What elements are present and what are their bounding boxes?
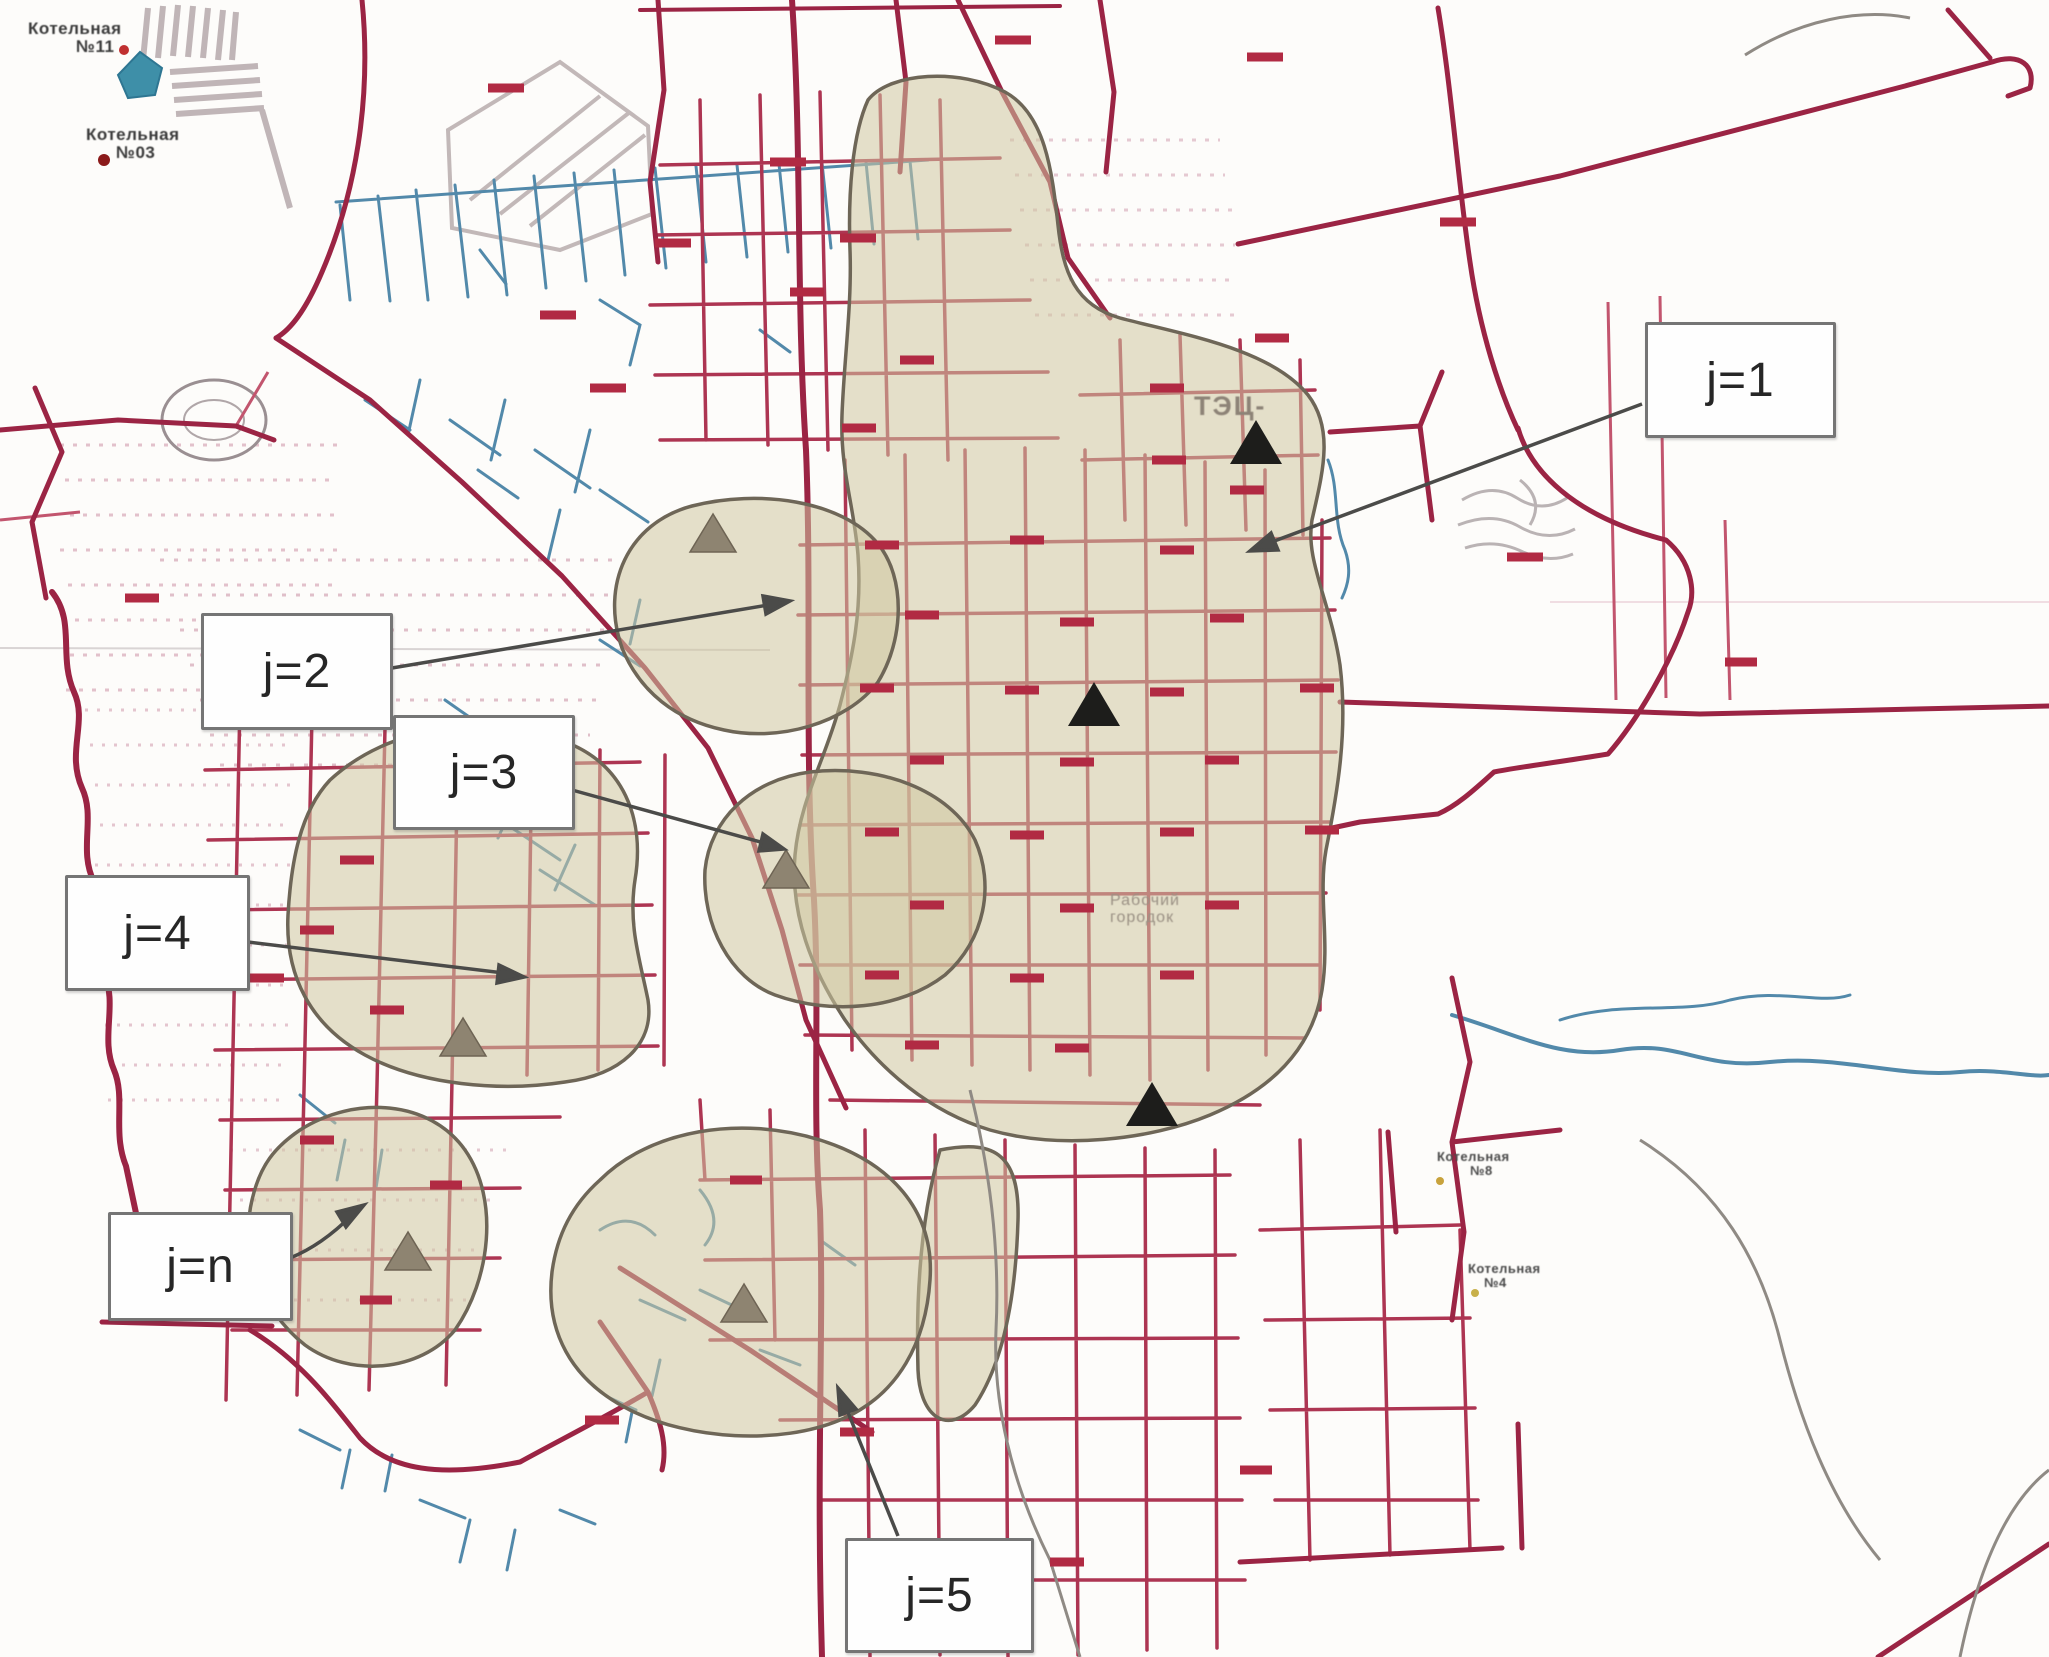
canal-band-upper bbox=[336, 160, 928, 301]
zone-label-box-j3: j=3 bbox=[393, 715, 575, 830]
zone-label-box-j1: j=1 bbox=[1645, 322, 1836, 438]
contour-bottomright-2 bbox=[1960, 1470, 2049, 1657]
boiler-label-e2-name: Котельная bbox=[1468, 1261, 1541, 1276]
contour-bottomright-1 bbox=[1640, 1140, 1880, 1560]
zone-j3-blob bbox=[705, 771, 985, 1007]
hatch-block-topleft-horizontal bbox=[170, 66, 290, 208]
road-top-vertical-3 bbox=[1100, 0, 1114, 172]
stadium-oval bbox=[162, 380, 266, 460]
heat-supply-zone-map-figure: j=1 j=2 j=3 j=4 j=n j=5 Котельная №11 Ко… bbox=[0, 0, 2049, 1657]
zone-label-text-j3: j=3 bbox=[450, 745, 518, 800]
zone-label-text-jn: j=n bbox=[166, 1239, 234, 1294]
road-topleft-vertical bbox=[276, 0, 365, 338]
road-right-horizontal bbox=[1340, 702, 2049, 714]
boiler-dot-e1 bbox=[1436, 1177, 1444, 1185]
boiler-label-e1-name: Котельная bbox=[1437, 1149, 1510, 1164]
zone-label-text-j4: j=4 bbox=[123, 906, 191, 961]
city-map-svg bbox=[0, 0, 2049, 1657]
canal-band-left-of-zone2 bbox=[365, 380, 648, 560]
road-bottomright bbox=[1240, 1132, 2049, 1657]
district-label: Рабочий городок bbox=[1110, 893, 1180, 927]
river-east bbox=[1452, 1015, 2049, 1076]
road-left-edge bbox=[32, 388, 62, 598]
hatch-block-topleft-vertical bbox=[143, 5, 236, 60]
zone-label-box-j2: j=2 bbox=[201, 613, 393, 730]
zone-label-text-j2: j=2 bbox=[263, 644, 331, 699]
boiler-label-nw2-name: Котельная bbox=[86, 125, 180, 144]
pond-topleft bbox=[118, 52, 162, 98]
zone-j2-blob bbox=[615, 498, 899, 733]
river-east-branch bbox=[1560, 995, 1850, 1020]
road-right-peninsula bbox=[1332, 428, 1692, 828]
boiler-label-e1: Котельная №8 bbox=[1437, 1150, 1510, 1177]
boiler-label-nw1-name: Котельная bbox=[28, 19, 122, 38]
zone-label-box-jn: j=n bbox=[108, 1212, 293, 1321]
zone-j5-blob bbox=[551, 1128, 931, 1436]
boiler-label-nw2-num: №03 bbox=[86, 144, 180, 162]
hatch-block-topcenter bbox=[448, 62, 652, 250]
boiler-label-e2-num: №4 bbox=[1468, 1276, 1541, 1290]
zone-label-box-j4: j=4 bbox=[65, 875, 250, 991]
district-label-line1: Рабочий bbox=[1110, 892, 1180, 909]
stadium-oval-inner bbox=[184, 400, 244, 440]
district-label-line2: городок bbox=[1110, 910, 1180, 927]
stream-top-center bbox=[480, 250, 790, 365]
boiler-label-e1-num: №8 bbox=[1437, 1164, 1510, 1178]
road-top-edge bbox=[640, 6, 1060, 10]
stream-right-of-zone1 bbox=[1328, 460, 1349, 598]
scribble-right-peninsula bbox=[1458, 480, 1575, 559]
zone-label-text-j1: j=1 bbox=[1706, 353, 1774, 408]
boiler-label-nw1-num: №11 bbox=[28, 38, 122, 56]
zone-label-box-j5: j=5 bbox=[845, 1538, 1034, 1653]
road-left-horizontal bbox=[0, 420, 274, 440]
grid-bottom-right bbox=[1260, 1130, 1478, 1560]
boiler-dot-e2 bbox=[1471, 1289, 1479, 1297]
boiler-label-nw2: Котельная №03 bbox=[86, 126, 180, 162]
boiler-label-nw1: Котельная №11 bbox=[28, 20, 122, 56]
chp-label-text: ТЭЦ- bbox=[1194, 391, 1266, 421]
boiler-label-e2: Котельная №4 bbox=[1468, 1262, 1541, 1289]
chp-label: ТЭЦ- bbox=[1194, 392, 1266, 420]
zone-j1-south-tail bbox=[918, 1147, 1019, 1421]
road-topright-long-diagonal bbox=[1238, 10, 2031, 244]
zone-label-text-j5: j=5 bbox=[905, 1568, 973, 1623]
contour-topright-arc bbox=[1745, 15, 1910, 55]
